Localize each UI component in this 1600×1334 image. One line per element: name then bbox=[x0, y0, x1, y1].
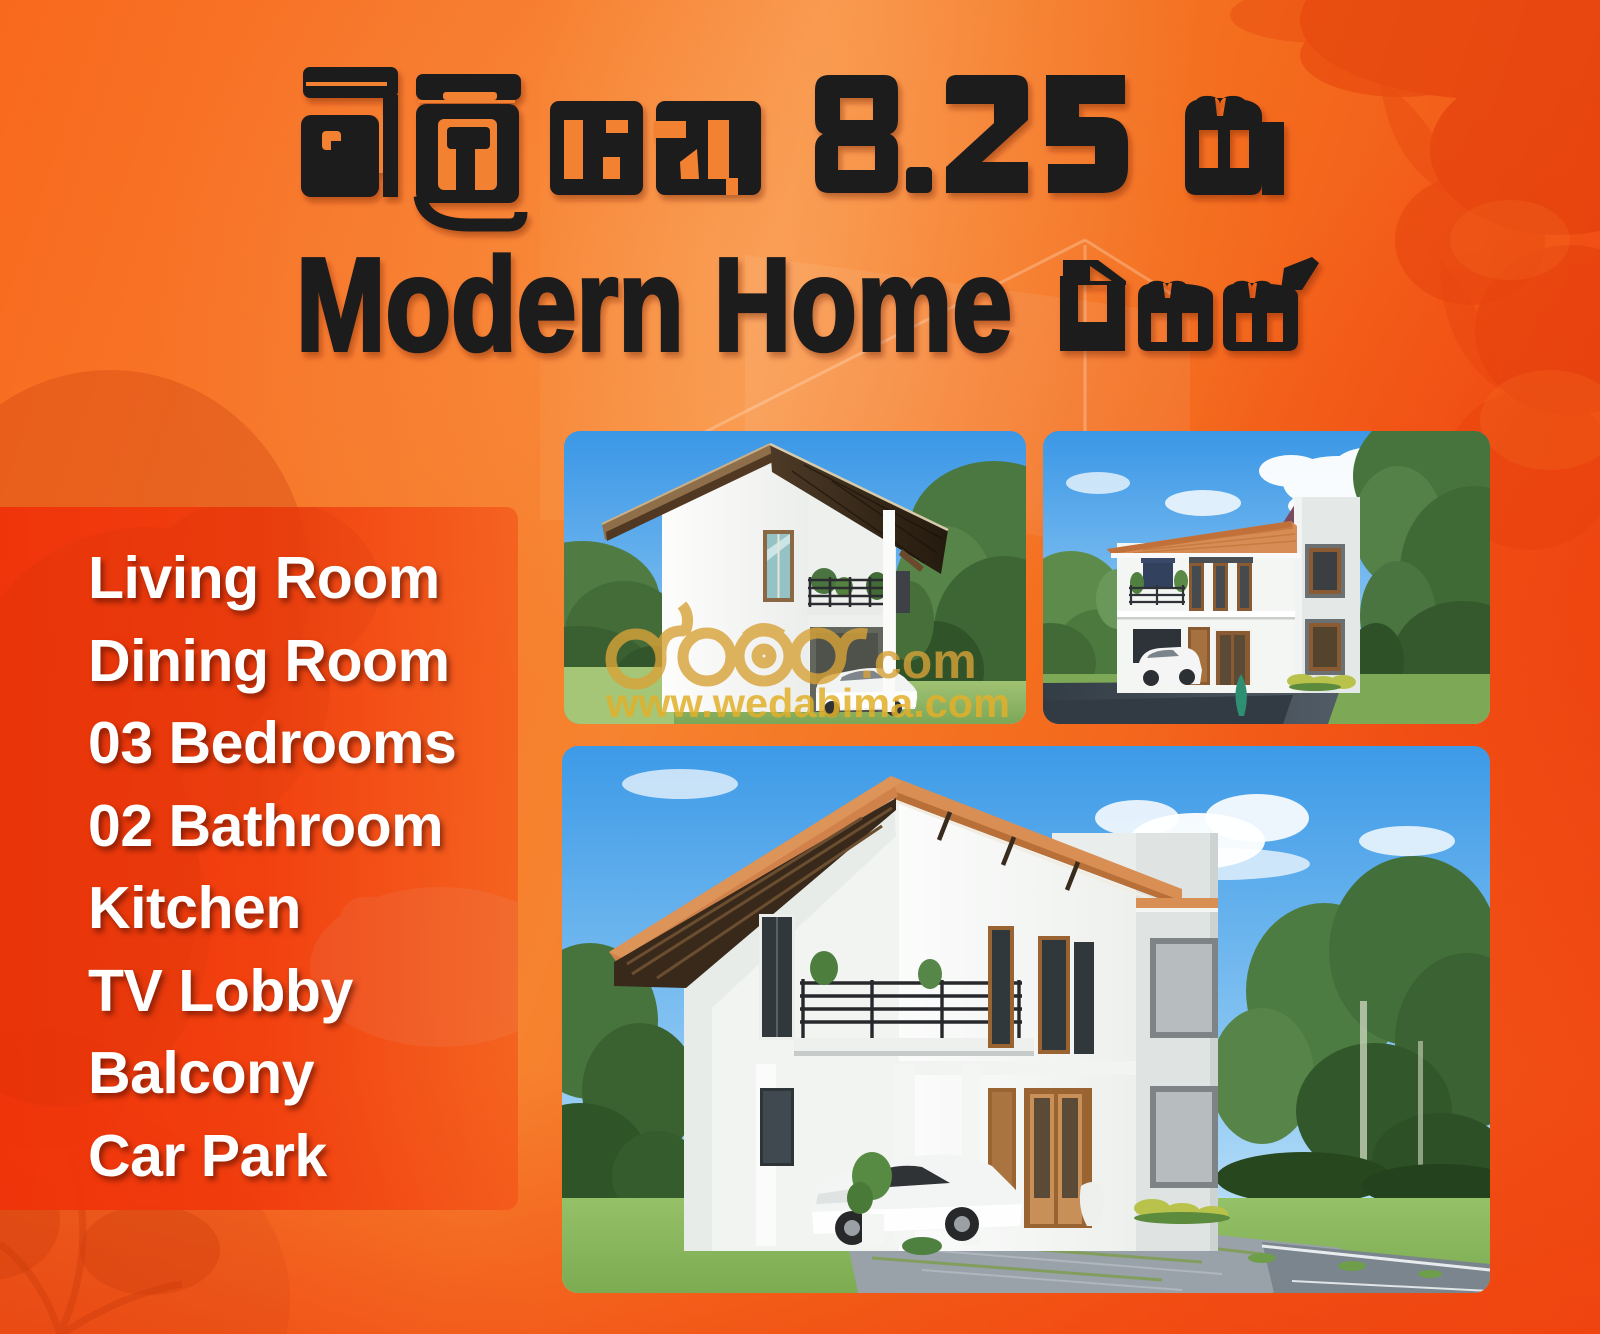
svg-text:Modern Home: Modern Home bbox=[296, 231, 1012, 378]
svg-text:www.wedabima.com: www.wedabima.com bbox=[605, 680, 1010, 724]
